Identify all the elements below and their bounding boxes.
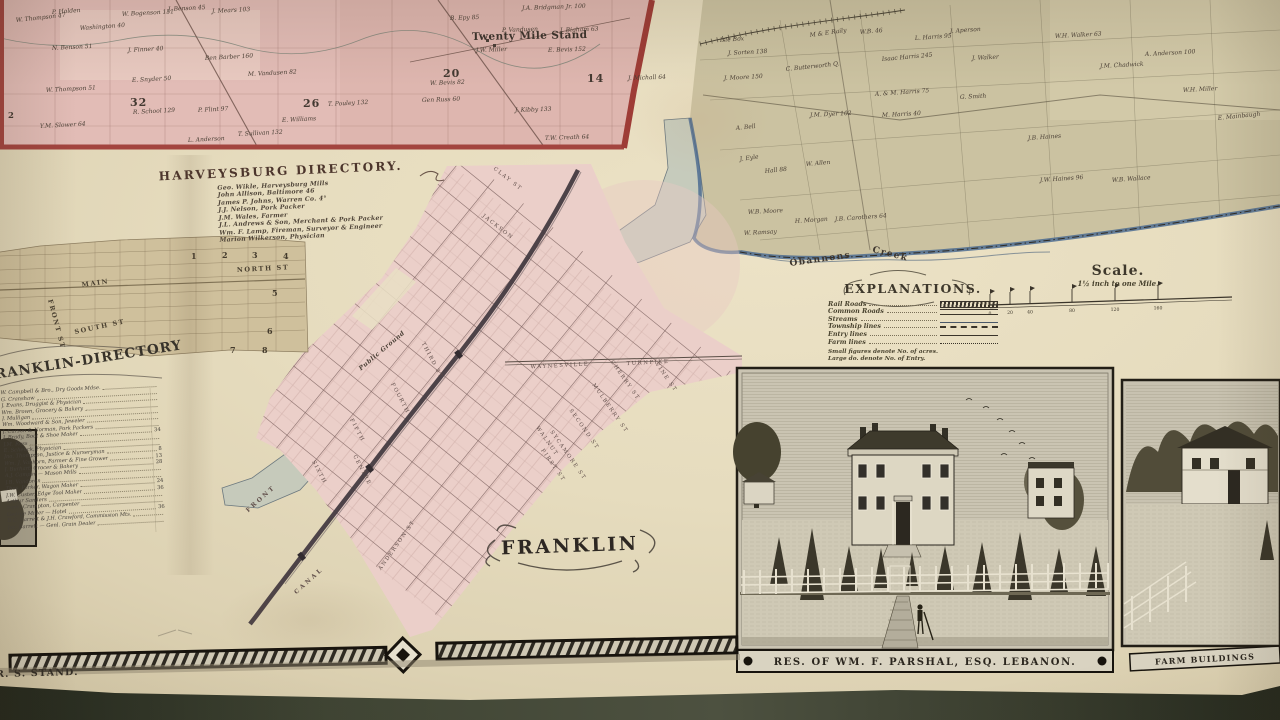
owner-label: W. Bevis 82 xyxy=(430,79,465,87)
block-number: 4 xyxy=(283,251,289,261)
section-number: 26 xyxy=(303,97,320,110)
svg-text:120: 120 xyxy=(1111,307,1120,313)
svg-text:FRANKLIN: FRANKLIN xyxy=(501,533,639,560)
section-number: 2 xyxy=(8,111,14,121)
scale-title: Scale. xyxy=(1028,263,1208,279)
svg-text:40: 40 xyxy=(1027,310,1033,316)
owner-label: B. Epy 85 xyxy=(449,14,480,22)
legend-line-sample xyxy=(940,326,998,330)
section-number: 32 xyxy=(130,96,147,109)
legend-line-sample xyxy=(940,343,998,346)
owner-label: J. Michall 64 xyxy=(626,74,666,82)
legend-line-sample xyxy=(940,309,998,315)
owner-label: G. Smith xyxy=(960,93,987,101)
legend-line-sample xyxy=(940,320,998,323)
farm-caption-band: FARM BUILDINGS xyxy=(1130,646,1280,671)
block-number: 3 xyxy=(252,250,258,260)
map-artwork: 2 32 26 20 14 Twenty Mile Stand W. Thomp… xyxy=(0,0,1280,720)
block-number: 6 xyxy=(267,326,273,336)
scale-subtitle: 1½ inch to one Mile. xyxy=(1028,279,1208,288)
owner-label: J.W. Miller xyxy=(474,46,508,54)
svg-text:20: 20 xyxy=(1007,310,1013,316)
owner-label: J. Bigham 63 xyxy=(558,26,599,34)
owner-label: J. Kibby 133 xyxy=(513,106,552,114)
block-number: 8 xyxy=(262,345,268,355)
township-map-northeast: Isle Box J. Sorten 138 M & E Raily W.B. … xyxy=(680,0,1280,270)
scale-block: Scale. 1½ inch to one Mile. xyxy=(1028,263,1208,288)
franklin-directory: W. Campbell & Bro., Dry Goods Mdse. G. C… xyxy=(0,382,165,531)
main-house xyxy=(848,423,958,557)
block-number: 7 xyxy=(230,345,236,355)
owner-label: P. Vandusen xyxy=(501,26,538,34)
farm-engraving: FARM BUILDINGS xyxy=(1122,380,1280,671)
photo-of-atlas-map: 2 32 26 20 14 Twenty Mile Stand W. Thomp… xyxy=(0,0,1280,720)
township-map-northwest: 2 32 26 20 14 Twenty Mile Stand W. Thomp… xyxy=(0,0,666,150)
harveysburg-directory-entries: Geo. Wikle, Harveysburg MillsJohn Alliso… xyxy=(217,175,451,245)
map-sheet: 2 32 26 20 14 Twenty Mile Stand W. Thomp… xyxy=(0,0,1280,705)
owner-label: E. Bevis 152 xyxy=(547,46,586,54)
residence-caption-band: RES. OF WM. F. PARSHAL, ESQ. LEBANON. xyxy=(737,650,1113,672)
legend-item: Farm lines xyxy=(828,338,998,346)
block-number: 2 xyxy=(222,250,228,260)
residence-caption: RES. OF WM. F. PARSHAL, ESQ. LEBANON. xyxy=(774,657,1077,668)
residence-engraving: RES. OF WM. F. PARSHAL, ESQ. LEBANON. xyxy=(733,368,1113,672)
legend-note-2: Large do. denote No. of Entry. xyxy=(828,356,998,364)
section-number: 14 xyxy=(587,72,604,85)
stand-caption: R. S. STAND. xyxy=(0,667,79,680)
block-number: 1 xyxy=(191,251,197,261)
svg-text:160: 160 xyxy=(1154,306,1163,312)
franklin-title: FRANKLIN xyxy=(486,525,655,572)
legend-line-sample xyxy=(940,301,998,308)
owner-label: Gen Russ 60 xyxy=(422,96,461,104)
explanations-title: EXPLANATIONS. xyxy=(828,281,998,296)
explanations-items: Rail Roads Common Roads Streams Township… xyxy=(828,300,998,346)
explanations-legend: EXPLANATIONS. Rail Roads Common Roads St… xyxy=(828,281,998,364)
svg-text:80: 80 xyxy=(1069,308,1075,314)
block-number: 5 xyxy=(272,288,278,298)
street-label: CANAL xyxy=(293,566,325,596)
legend-line-sample xyxy=(940,335,998,338)
harveysburg-directory: HARVEYSBURG DIRECTORY. Geo. Wikle, Harve… xyxy=(158,157,451,247)
legend-note-1: Small figures denote No. of acres. xyxy=(828,349,998,357)
